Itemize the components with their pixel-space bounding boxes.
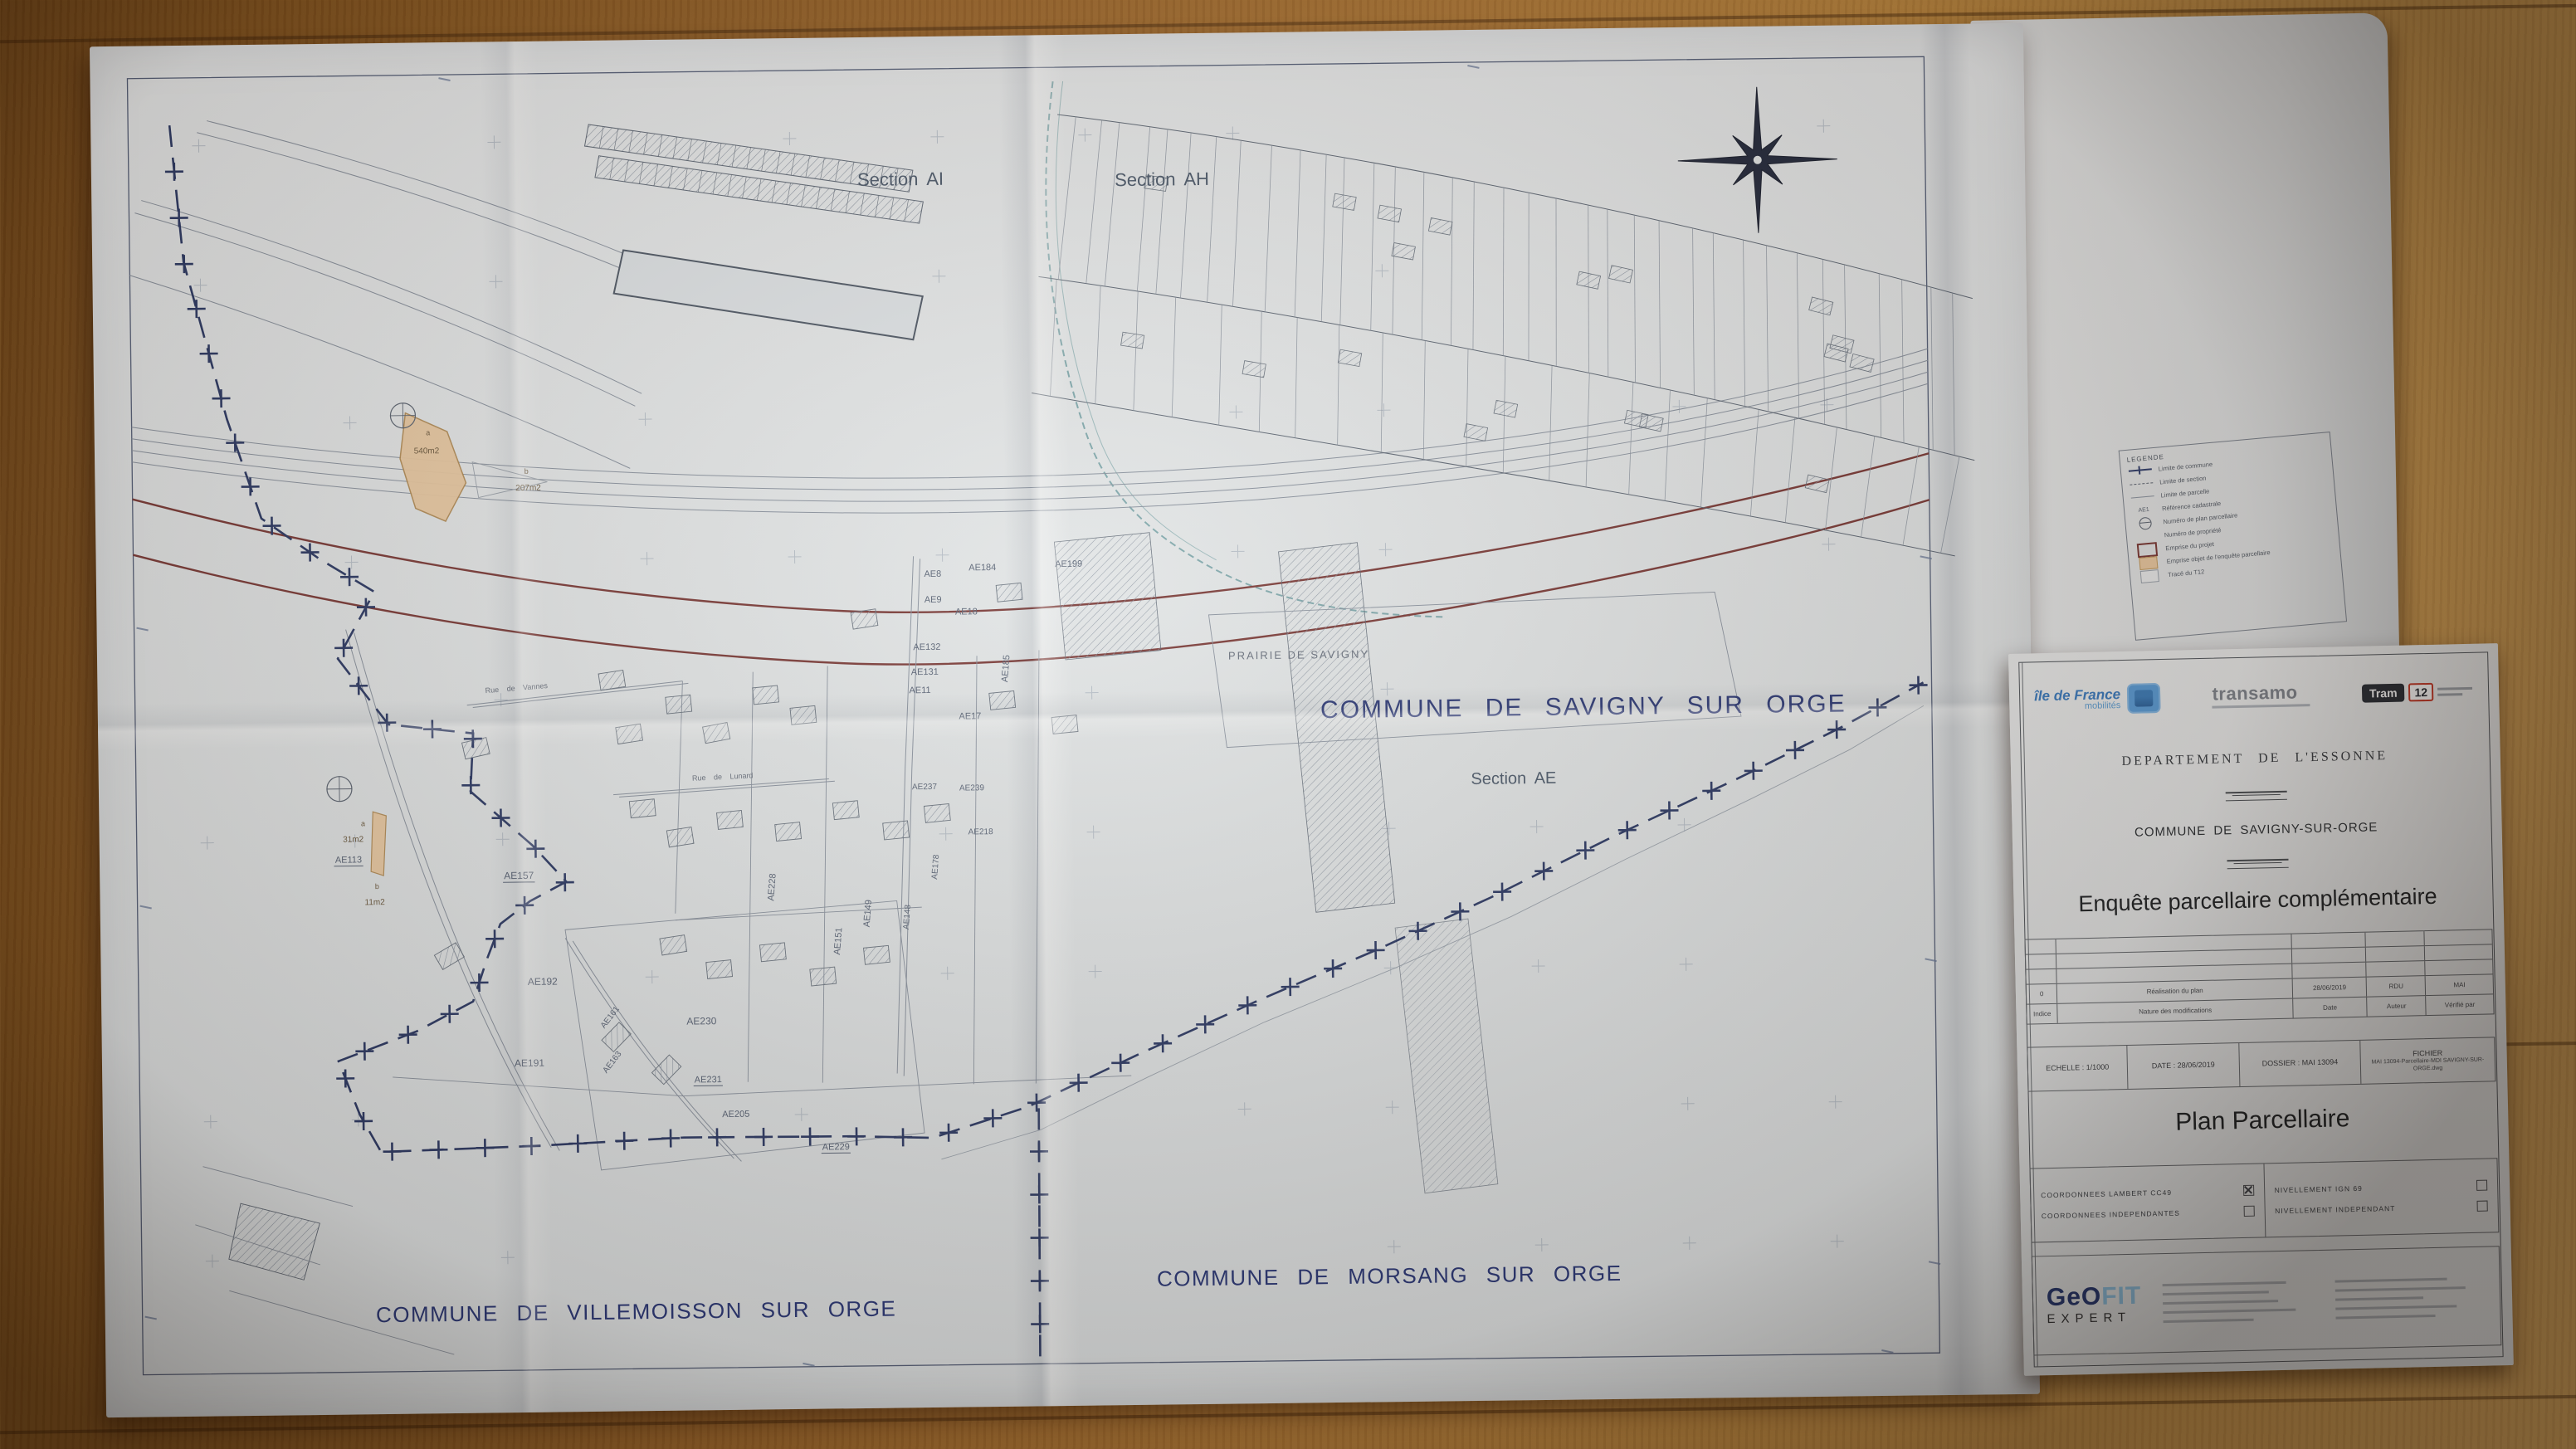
file-cell: FICHIER MAI 13094-Parcellaire-MDI SAVIGN… xyxy=(2359,1037,2495,1084)
map-label: AE228 xyxy=(766,873,778,901)
leveling-option: NIVELLEMENT IGN 69 xyxy=(2275,1180,2488,1196)
checkbox-nivellement-independant xyxy=(2477,1201,2488,1212)
revision-table-cell xyxy=(2291,948,2366,964)
revision-table-cell: Nature des modifications xyxy=(2057,999,2293,1023)
coord-option: COORDONNEES LAMBERT CC49 xyxy=(2041,1185,2254,1201)
revision-table-cell xyxy=(2026,954,2056,969)
revision-table-cell xyxy=(2424,944,2492,960)
revision-table-cell: Indice xyxy=(2027,1004,2057,1024)
map-label: AE229 xyxy=(822,1142,850,1152)
map-label: 207m2 xyxy=(515,484,541,493)
coord-option: COORDONNEES INDEPENDANTES xyxy=(2042,1206,2255,1222)
project-extent-symbol xyxy=(2134,544,2160,556)
file-name: MAI 13094-Parcellaire-MDI SAVIGNY-SUR-OR… xyxy=(2364,1056,2491,1074)
separator-ornament xyxy=(2227,859,2288,870)
leveling-column: NIVELLEMENT IGN 69 NIVELLEMENT INDEPENDA… xyxy=(2263,1159,2498,1237)
revision-table-cell: Auteur xyxy=(2366,996,2426,1017)
coordinates-column: COORDONNEES LAMBERT CC49 COORDONNEES IND… xyxy=(2031,1164,2265,1242)
title-block-panel: île de France mobilités transamo Tram 12… xyxy=(2008,643,2514,1376)
logo-row: île de France mobilités transamo Tram 12 xyxy=(2018,661,2487,729)
map-label: AE205 xyxy=(722,1110,749,1120)
map-label: AE178 xyxy=(930,854,941,880)
cadastral-ref-symbol: AE1 xyxy=(2131,504,2157,516)
map-label: AE184 xyxy=(968,563,996,573)
revision-table-cell: Vérifié par xyxy=(2426,994,2494,1015)
dossier-cell: DOSSIER : MAI 13094 xyxy=(2238,1041,2360,1086)
legend-entry-label: Emprise du projet xyxy=(2165,539,2214,551)
revision-table-cell xyxy=(2424,929,2492,945)
map-label: COMMUNE DE SAVIGNY SUR ORGE xyxy=(1320,690,1847,724)
map-label: Section AI xyxy=(857,168,944,190)
revision-table-cell xyxy=(2291,963,2366,978)
owner-number-symbol xyxy=(2134,530,2159,543)
revision-table-cell: Date xyxy=(2292,998,2367,1018)
map-label: 11m2 xyxy=(364,898,385,907)
map-label: AE218 xyxy=(968,827,994,837)
map-label: AE18 xyxy=(955,607,978,617)
revision-table-cell: 28/06/2019 xyxy=(2292,978,2367,998)
map-label: AE237 xyxy=(912,783,938,792)
revision-table-cell xyxy=(2026,939,2056,954)
map-label: AE185 xyxy=(1000,655,1012,683)
map-label: Section AH xyxy=(1115,168,1209,190)
map-label: AE191 xyxy=(515,1057,545,1069)
legend-entry-label: Référence cadastrale xyxy=(2162,500,2222,512)
transamo-logo: transamo xyxy=(2212,683,2310,709)
separator-ornament xyxy=(2226,791,2287,802)
map-label: COMMUNE DE VILLEMOISSON SUR ORGE xyxy=(376,1296,897,1328)
map-label: AE230 xyxy=(686,1015,717,1027)
revision-table-cell xyxy=(2365,931,2425,947)
tram-t12-logo: Tram 12 xyxy=(2362,682,2472,703)
map-label: AE163 xyxy=(602,1050,624,1076)
map-label: AE17 xyxy=(959,711,981,721)
map-label: b xyxy=(375,882,379,890)
legend-entry-label: Numéro de propriété xyxy=(2164,526,2221,539)
leveling-option: NIVELLEMENT INDEPENDANT xyxy=(2275,1201,2488,1217)
tram-line-number: 12 xyxy=(2408,683,2433,702)
map-legend: LEGENDE Limite de communeLimite de secti… xyxy=(2119,432,2347,641)
map-label: AE151 xyxy=(832,927,844,955)
date-cell: DATE : 28/06/2019 xyxy=(2126,1043,2240,1089)
map-label: AE8 xyxy=(924,569,941,579)
map-label: AE231 xyxy=(695,1075,722,1085)
tram-subtext xyxy=(2437,687,2472,696)
revision-table-cell xyxy=(2365,946,2425,962)
legend-entry-label: Numéro de plan parcellaire xyxy=(2163,511,2238,525)
revision-table-cell: MAI xyxy=(2425,974,2493,995)
scale-cell: ECHELLE : 1/1000 xyxy=(2027,1046,2127,1091)
t12-route-symbol xyxy=(2137,570,2163,583)
map-label: AE131 xyxy=(911,667,939,677)
map-label: AE157 xyxy=(504,870,534,881)
revision-table-cell xyxy=(2026,969,2056,984)
map-label: AE192 xyxy=(528,975,559,987)
map-label: COMMUNE DE MORSANG SUR ORGE xyxy=(1157,1261,1622,1291)
plan-number-symbol xyxy=(2132,517,2158,529)
map-label: 31m2 xyxy=(343,835,364,844)
map-label: 540m2 xyxy=(414,446,440,456)
map-label: AE148 xyxy=(902,904,913,929)
revision-table: 0Réalisation du plan28/06/2019RDUMAIIndi… xyxy=(2025,929,2495,1024)
checkbox-lambert-cc49-checked xyxy=(2243,1185,2254,1196)
folded-blank-panel: LEGENDE Limite de communeLimite de secti… xyxy=(1970,12,2399,682)
office-address-block xyxy=(2163,1281,2315,1323)
map-label: AE149 xyxy=(862,900,874,928)
map-label: AE11 xyxy=(909,685,930,695)
checkbox-coordonnees-independantes xyxy=(2243,1206,2254,1217)
ile-de-france-mobilites-logo: île de France mobilités xyxy=(2034,683,2161,715)
map-label: PRAIRIE DE SAVIGNY xyxy=(1228,648,1369,662)
map-label: Rue de Lunard xyxy=(692,771,754,782)
surveyor-footer: GeOFIT EXPERT xyxy=(2032,1246,2501,1355)
inquiry-extent-symbol xyxy=(2135,557,2161,569)
map-label: AE132 xyxy=(913,642,940,652)
geofit-expert-logo: GeOFIT EXPERT xyxy=(2047,1284,2142,1325)
map-label: AE113 xyxy=(335,855,362,865)
revision-table-cell xyxy=(2366,961,2426,977)
map-label: a xyxy=(361,819,365,827)
coordinate-system-box: COORDONNEES LAMBERT CC49 COORDONNEES IND… xyxy=(2030,1158,2500,1242)
cadastral-map: Section AISection AHCOMMUNE DE SAVIGNY S… xyxy=(90,23,2040,1417)
commune-boundary-symbol xyxy=(2127,464,2153,476)
parcel-boundary-symbol xyxy=(2130,490,2155,503)
file-label: FICHIER xyxy=(2413,1048,2442,1058)
agency-address-block xyxy=(2335,1276,2487,1319)
revision-table-cell xyxy=(2291,933,2365,949)
map-label: AE9 xyxy=(925,595,942,605)
map-label: Rue de Vannes xyxy=(485,681,548,695)
idf-logo-icon xyxy=(2127,683,2161,714)
map-label: AE239 xyxy=(959,783,985,793)
compass-rose xyxy=(1677,86,1838,234)
map-label: Section AE xyxy=(1471,769,1556,788)
checkbox-nivellement-ign69 xyxy=(2476,1180,2487,1191)
revision-table-cell xyxy=(2425,959,2493,975)
tram-badge: Tram xyxy=(2362,684,2405,703)
revision-table-cell: RDU xyxy=(2366,976,2426,997)
legend-entry-label: Tracé du T12 xyxy=(2168,568,2205,578)
section-boundary-symbol xyxy=(2129,477,2154,490)
legend-entry-label: Limite de section xyxy=(2159,474,2207,485)
transamo-tagline xyxy=(2213,704,2310,709)
legend-entry-label: Limite de parcelle xyxy=(2160,487,2209,499)
map-label: a xyxy=(426,428,430,437)
map-sheet: Section AISection AHCOMMUNE DE SAVIGNY S… xyxy=(90,23,2040,1417)
map-label: AE199 xyxy=(1055,559,1082,569)
revision-table-cell: 0 xyxy=(2027,984,2057,1004)
map-label: b xyxy=(524,467,529,476)
legend-entry-label: Limite de commune xyxy=(2158,460,2213,472)
